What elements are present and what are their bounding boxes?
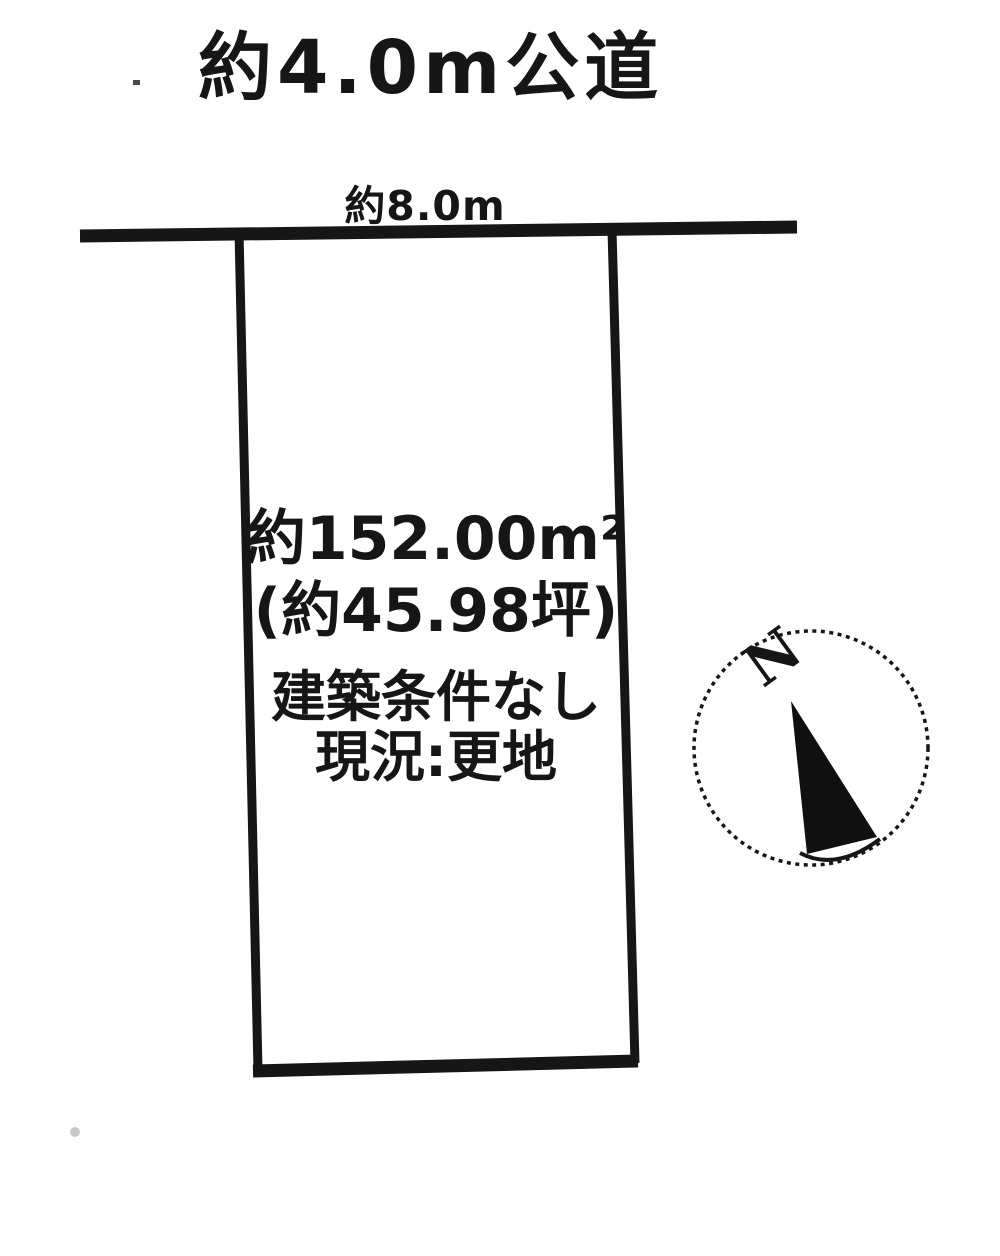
- building-condition-label: 建築条件なし: [240, 667, 632, 727]
- plot-bottom-edge: [253, 1061, 638, 1071]
- plot-info-block: 約152.00m² (約45.98坪) 建築条件なし 現況:更地: [240, 503, 632, 787]
- scan-speck-bottom: [70, 1127, 80, 1137]
- area-tsubo-label: (約45.98坪): [240, 575, 632, 647]
- scan-speck-top: [133, 80, 140, 85]
- compass-needle-icon: [791, 701, 877, 854]
- area-m2-label: 約152.00m²: [240, 503, 632, 575]
- road-width-label: 約4.0m公道: [198, 28, 658, 109]
- land-plot-diagram: 約4.0m公道 約8.0m 約152.00m² (約45.98坪) 建築条件なし…: [0, 0, 1000, 1256]
- frontage-dimension-label: 約8.0m: [280, 172, 570, 232]
- current-status-label: 現況:更地: [240, 727, 632, 787]
